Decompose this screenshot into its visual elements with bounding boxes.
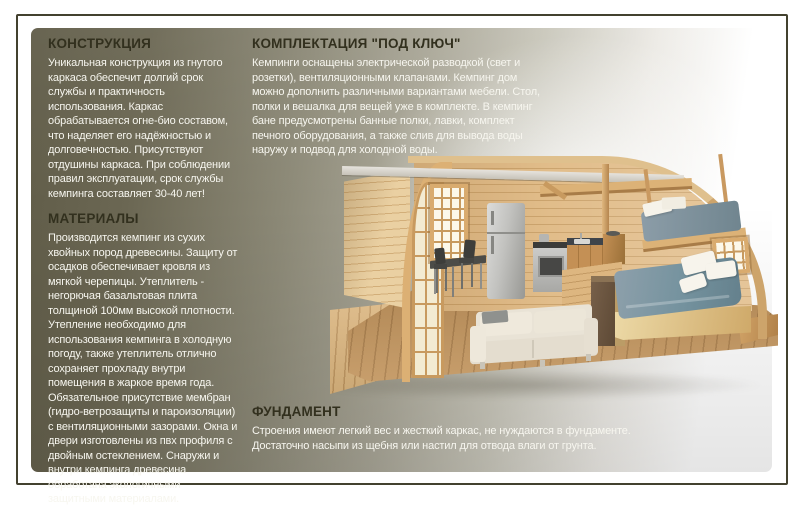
left-column: КОНСТРУКЦИЯ Уникальная конструкция из гн… <box>48 36 240 517</box>
chair-back <box>463 239 476 258</box>
chair-leg <box>445 269 447 291</box>
fridge-handle-bottom <box>491 236 494 254</box>
chair-leg <box>436 269 438 293</box>
sofa-throw-blanket <box>482 310 509 324</box>
house-kettle <box>539 234 549 242</box>
chair-leg <box>471 263 473 287</box>
loft-support-right <box>718 154 728 206</box>
sofa-foot <box>540 360 545 367</box>
house-exterior-left-wall <box>344 169 410 309</box>
chair-back <box>434 248 446 265</box>
counter-faucet <box>580 233 582 239</box>
table-leg <box>452 267 454 297</box>
section-title-turnkey: КОМПЛЕКТАЦИЯ "ПОД КЛЮЧ" <box>252 36 540 51</box>
sofa-foot <box>480 362 485 369</box>
section-body-materials: Производится кемпинг из сухих хвойных по… <box>48 231 240 507</box>
counter-sink <box>574 239 590 244</box>
house-sofa <box>470 302 598 370</box>
loft-pillow-2 <box>662 196 687 209</box>
house-chair-1 <box>456 240 476 296</box>
foundation-section: ФУНДАМЕНТ Строения имеют легкий вес и же… <box>252 404 657 463</box>
stove-cooktop <box>533 242 567 248</box>
wardrobe-top <box>591 276 615 282</box>
stove-oven-window <box>538 256 564 277</box>
sofa-foot <box>586 354 591 361</box>
house-cutaway-illustration <box>330 156 782 418</box>
turnkey-section: КОМПЛЕКТАЦИЯ "ПОД КЛЮЧ" Кемпинги оснащен… <box>252 36 540 168</box>
sofa-armrest-left <box>470 326 486 362</box>
chair-leg <box>461 263 463 289</box>
duvet-fold <box>626 295 730 309</box>
section-title-foundation: ФУНДАМЕНТ <box>252 404 657 419</box>
section-title-construction: КОНСТРУКЦИЯ <box>48 36 240 51</box>
section-title-materials: МАТЕРИАЛЫ <box>48 211 240 226</box>
section-body-foundation: Строения имеют легкий вес и жесткий карк… <box>252 424 657 453</box>
house-fridge <box>487 203 525 299</box>
section-body-turnkey: Кемпинги оснащены электрической разводко… <box>252 56 540 158</box>
fridge-handle-top <box>491 211 494 225</box>
table-leg <box>480 263 482 289</box>
brochure-page: КОНСТРУКЦИЯ Уникальная конструкция из гн… <box>0 0 800 500</box>
house-chair-2 <box>433 248 451 298</box>
sofa-seat-seam <box>532 340 534 358</box>
house-side-cabinet <box>603 234 625 264</box>
sofa-armrest-right <box>584 318 598 354</box>
section-body-construction: Уникальная конструкция из гнутого каркас… <box>48 56 240 201</box>
sofa-back-cushion-2 <box>534 308 586 334</box>
fridge-freezer-line <box>487 232 525 234</box>
cabinet-basin <box>606 231 620 236</box>
